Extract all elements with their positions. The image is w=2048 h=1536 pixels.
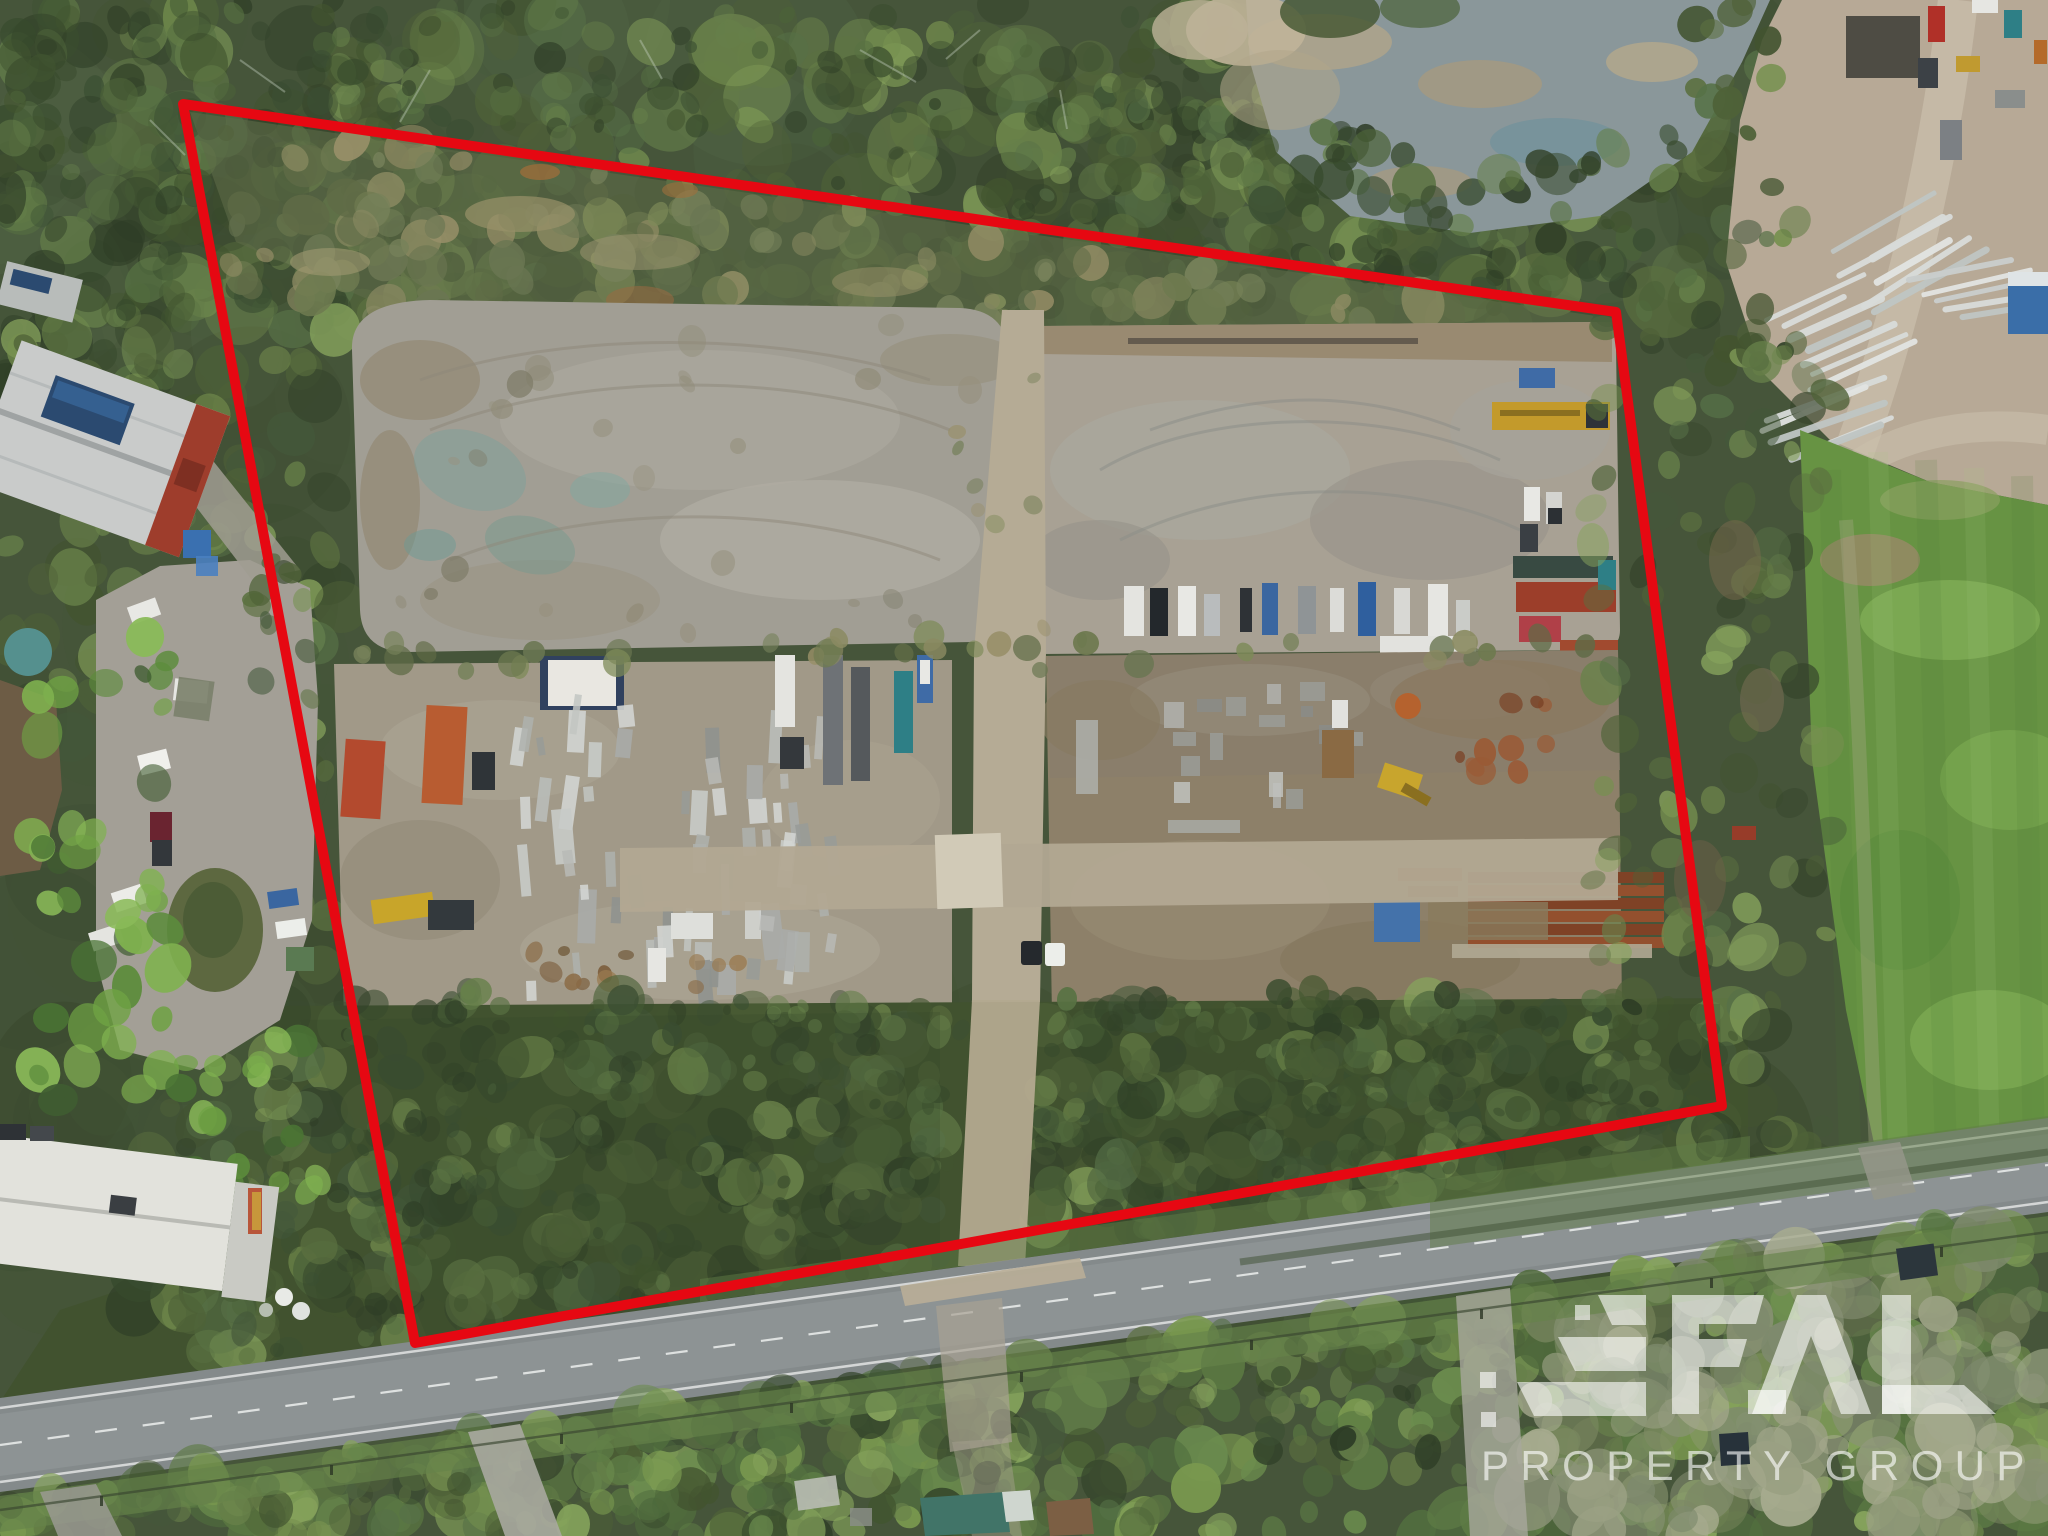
svg-text:PROPERTY GROUP: PROPERTY GROUP [1481,1442,2036,1489]
